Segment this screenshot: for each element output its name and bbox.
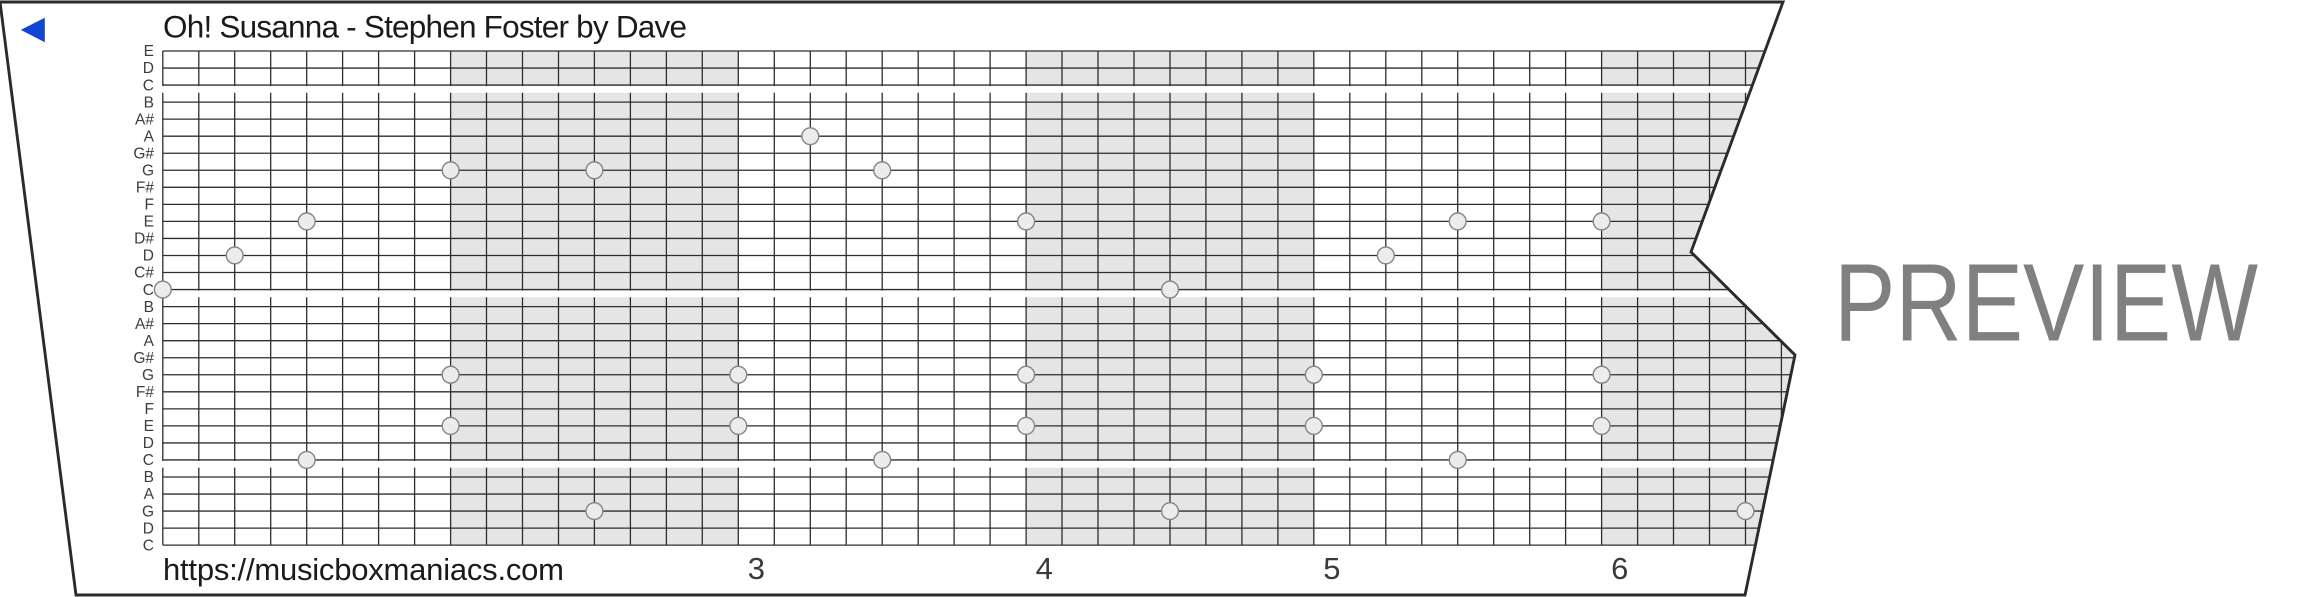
svg-text:G#: G# <box>133 350 154 367</box>
svg-text:5: 5 <box>1323 551 1340 586</box>
svg-text:B: B <box>144 299 154 316</box>
svg-text:A#: A# <box>135 316 154 333</box>
svg-text:A#: A# <box>135 111 154 128</box>
svg-text:G: G <box>142 367 154 384</box>
svg-text:C: C <box>143 282 154 299</box>
svg-text:C: C <box>143 77 154 94</box>
svg-text:C: C <box>143 537 154 554</box>
svg-text:https://musicboxmaniacs.com: https://musicboxmaniacs.com <box>163 552 564 587</box>
svg-text:F: F <box>145 401 154 418</box>
svg-text:D: D <box>143 248 154 265</box>
svg-text:B: B <box>144 469 154 486</box>
svg-text:F: F <box>145 197 154 214</box>
svg-text:D#: D# <box>134 231 154 248</box>
svg-text:4: 4 <box>1036 551 1053 586</box>
svg-text:G: G <box>142 162 154 179</box>
svg-text:C: C <box>143 452 154 469</box>
svg-text:D: D <box>143 60 154 77</box>
svg-text:E: E <box>144 418 154 435</box>
svg-text:D: D <box>143 520 154 537</box>
svg-text:A: A <box>144 333 155 350</box>
svg-text:6: 6 <box>1611 551 1628 586</box>
svg-text:3: 3 <box>748 551 765 586</box>
svg-text:E: E <box>144 43 154 60</box>
svg-text:G: G <box>142 503 154 520</box>
svg-text:G#: G# <box>133 145 154 162</box>
svg-text:PREVIEW: PREVIEW <box>1834 242 2258 365</box>
svg-text:E: E <box>144 214 154 231</box>
svg-text:A: A <box>144 486 155 503</box>
svg-text:D: D <box>143 435 154 452</box>
svg-text:A: A <box>144 128 155 145</box>
svg-text:F#: F# <box>136 180 154 197</box>
svg-text:C#: C# <box>134 265 154 282</box>
svg-text:B: B <box>144 94 154 111</box>
svg-text:Oh! Susanna - Stephen Foster b: Oh! Susanna - Stephen Foster by Dave <box>163 9 687 45</box>
svg-text:F#: F# <box>136 384 154 401</box>
